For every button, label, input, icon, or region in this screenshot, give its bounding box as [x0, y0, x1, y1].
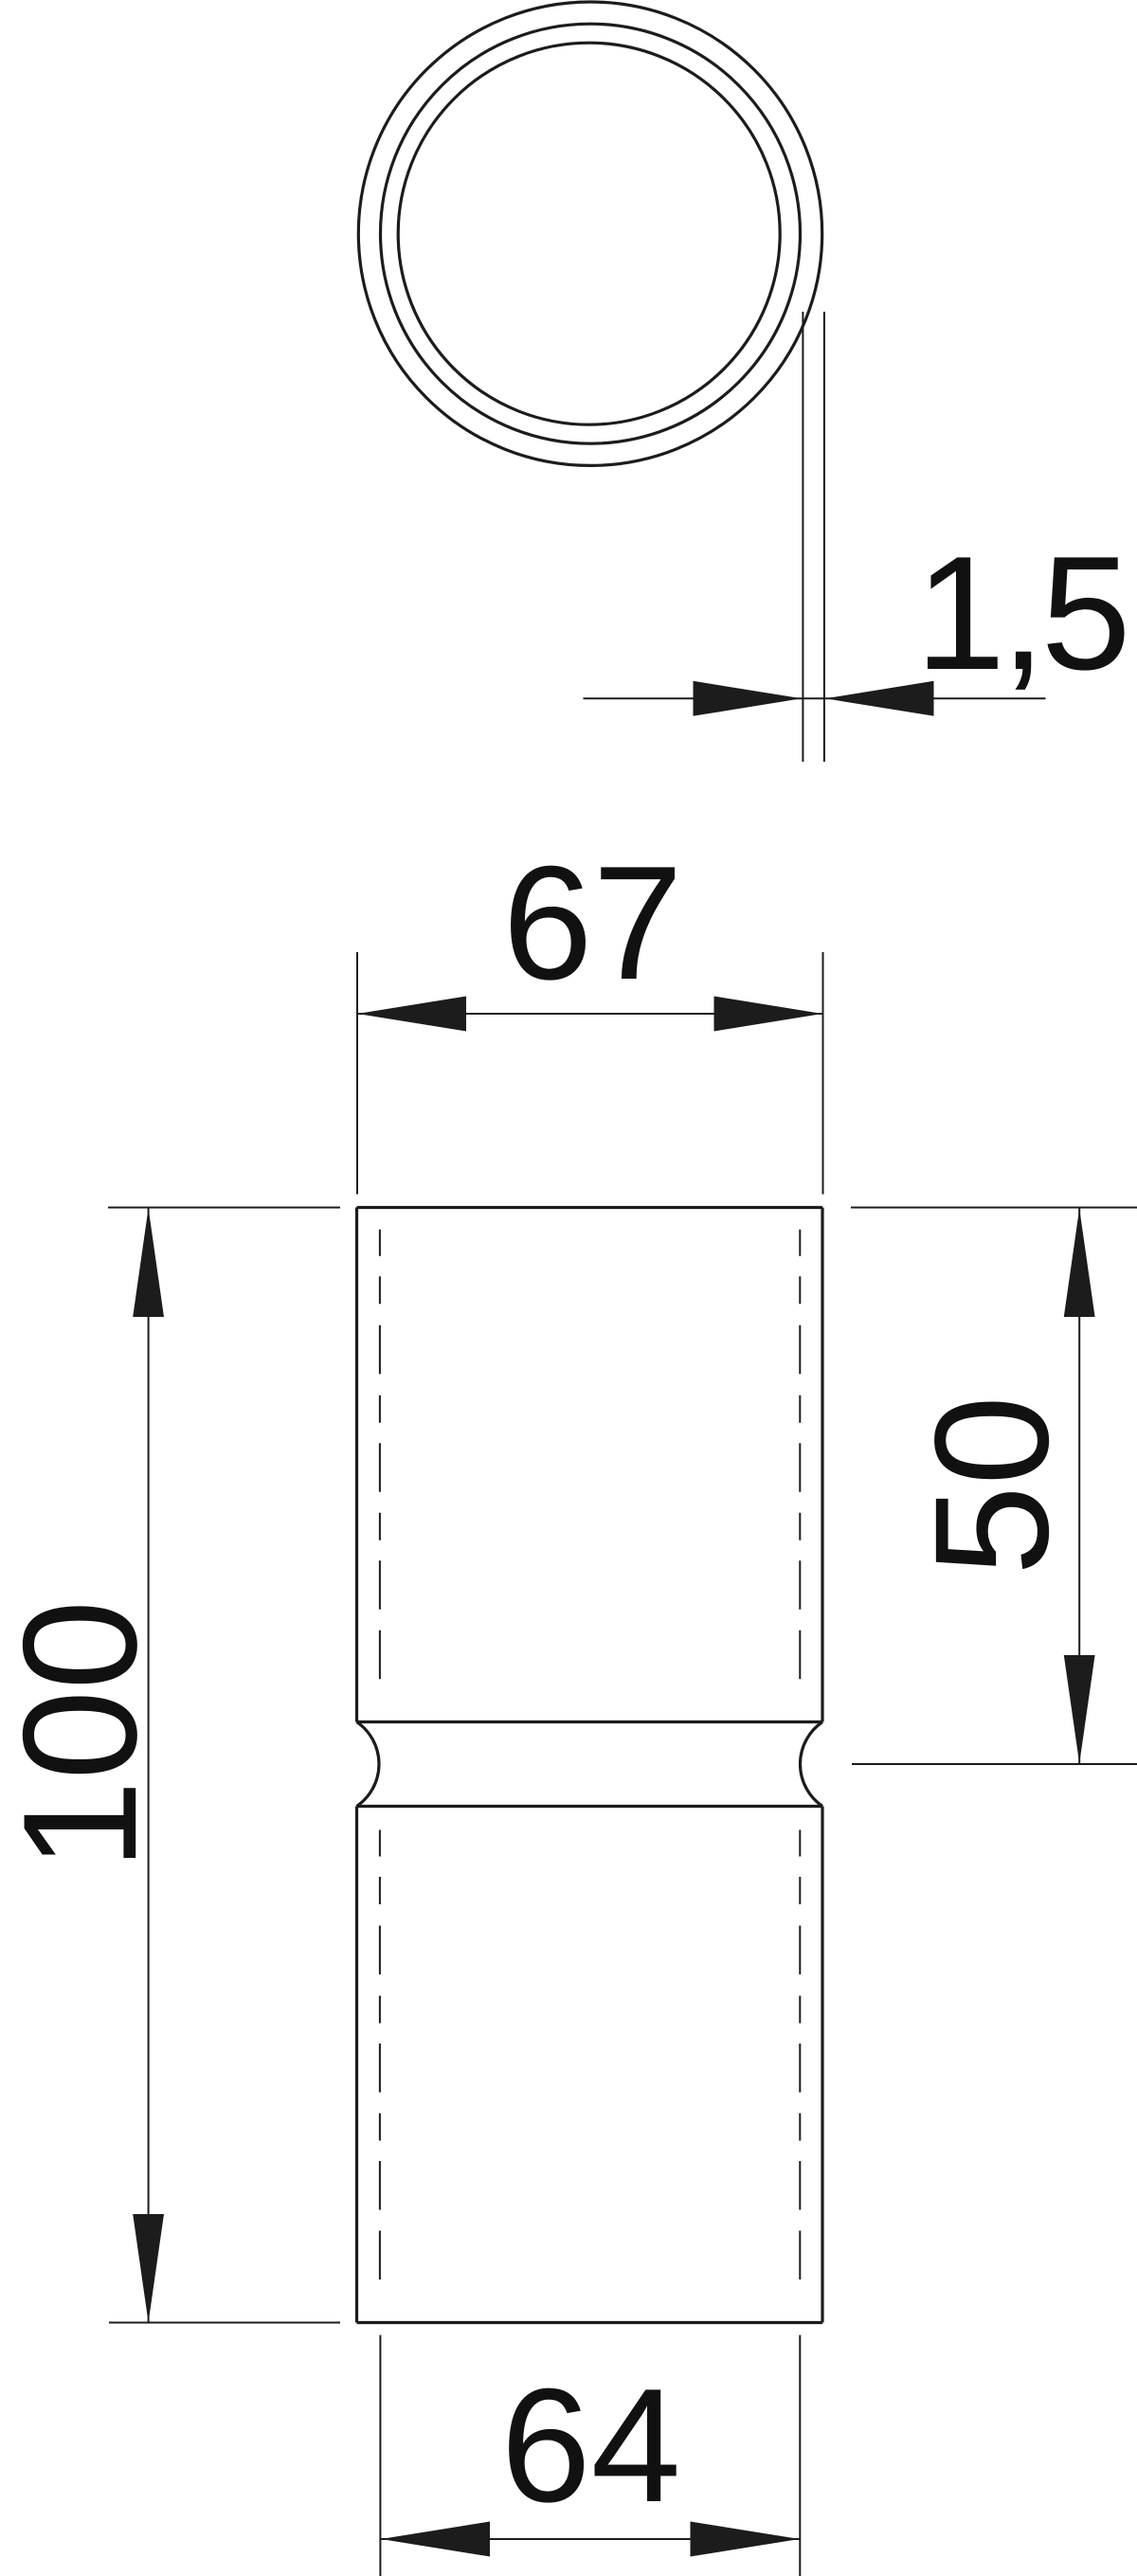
svg-text:64: 64 [501, 2355, 681, 2536]
svg-text:1,5: 1,5 [915, 523, 1127, 704]
svg-text:50: 50 [902, 1396, 1083, 1576]
svg-text:67: 67 [502, 833, 682, 1014]
svg-text:100: 100 [0, 1600, 171, 1870]
